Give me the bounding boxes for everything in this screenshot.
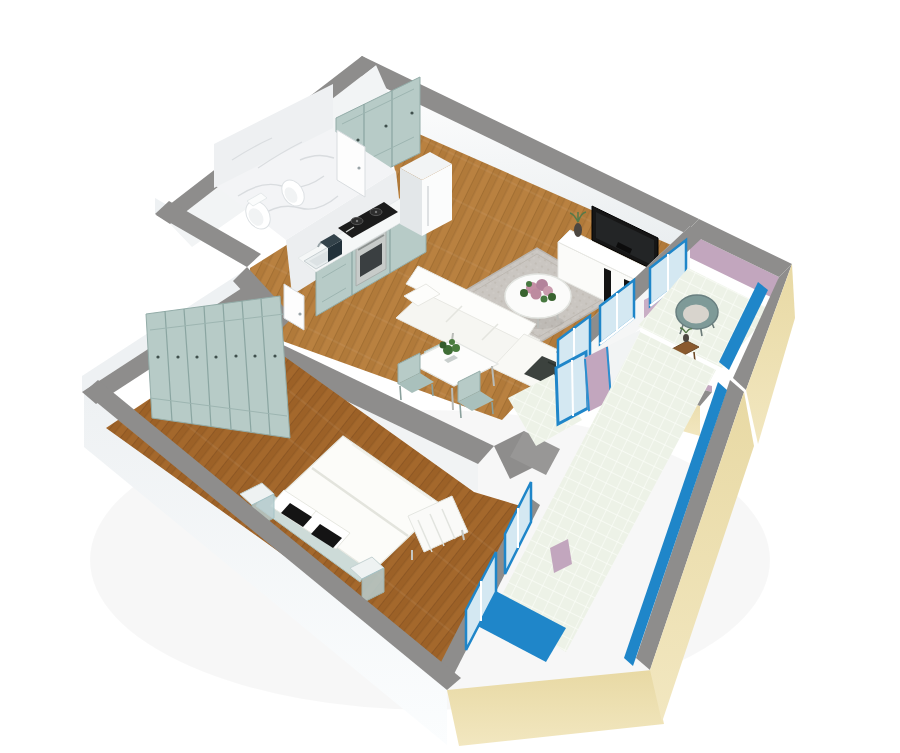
floor-plan-stage	[0, 0, 900, 753]
wardrobes	[146, 296, 290, 438]
refrigerator	[400, 152, 452, 236]
apartment-floor-plan-render	[0, 0, 900, 753]
